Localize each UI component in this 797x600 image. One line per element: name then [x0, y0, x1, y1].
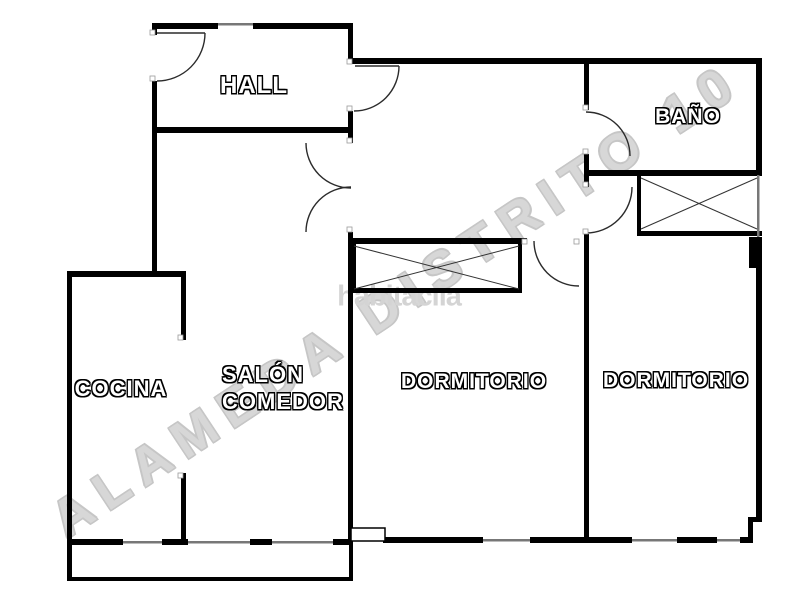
wardrobe2-bottom: [637, 231, 762, 236]
wall-cocina-left: [67, 271, 72, 545]
wall-hall-bottom: [153, 127, 353, 133]
window-right-side: [757, 175, 760, 237]
wall-right-lower: [756, 268, 762, 522]
entry-door-arc: [157, 33, 205, 81]
wall-corridor-bottom: [350, 238, 527, 244]
wall-hall-top-left: [153, 23, 218, 29]
dormitorio1-door-arc: [534, 241, 579, 286]
doors: [157, 33, 632, 286]
label-hall: HALL: [220, 72, 288, 100]
wall-south-1: [67, 539, 123, 545]
wall-bano-bottom: [584, 170, 762, 176]
wall-corridor-top: [348, 58, 762, 64]
wardrobe1-right: [518, 244, 522, 293]
label-salon-line2: COMEDOR: [222, 388, 344, 415]
wall-bano-left: [584, 58, 589, 110]
window-dorm2-south-2: [717, 539, 740, 542]
wall-dorm-south-2: [530, 537, 632, 543]
wall-right-upper: [756, 58, 762, 175]
wall-hall-top-right: [253, 23, 353, 29]
label-dormitorio-2: DORMITORIO: [603, 369, 749, 393]
floor-plan-page: ALAMEDA DISTRITO 10 habitaclia: [0, 0, 797, 600]
double-door-top-arc: [306, 143, 351, 188]
window-salon-south-1: [188, 541, 250, 544]
window-cocina-south: [123, 541, 162, 544]
wall-south-3: [250, 539, 272, 545]
label-bano: BAÑO: [655, 105, 721, 129]
label-salon-comedor: SALÓN COMEDOR: [222, 361, 344, 415]
label-cocina: COCINA: [75, 376, 168, 402]
hall-corridor-door-arc: [354, 66, 399, 111]
wall-dorm-south-1: [383, 537, 483, 543]
windows: [123, 23, 760, 544]
wall-step-horizontal: [748, 517, 762, 522]
window-hall-top: [218, 23, 253, 26]
wall-dorm-south-3: [677, 537, 717, 543]
balcony-step-box: [351, 528, 385, 541]
terrace-right: [349, 543, 353, 581]
window-dorm1-south: [483, 539, 530, 542]
wardrobe1-left: [352, 244, 356, 293]
floor-plan-drawing: [0, 0, 797, 600]
wall-separator-upper: [181, 277, 186, 340]
wardrobe1-bottom: [352, 288, 522, 293]
wall-left-main: [152, 81, 157, 273]
door-jambs: [150, 30, 588, 478]
wall-dorm-separator: [584, 234, 589, 543]
pillar-column: [749, 237, 762, 268]
dormitorio2-door-arc: [586, 187, 632, 233]
wall-step-vertical: [748, 522, 753, 539]
wall-cocina-top: [67, 271, 186, 277]
label-dormitorio-1: DORMITORIO: [401, 370, 547, 394]
label-salon-line1: SALÓN: [222, 361, 344, 388]
wardrobe2-left: [637, 176, 641, 236]
wall-east-upper: [348, 23, 353, 64]
bano-door-arc: [586, 112, 630, 156]
terrace-bottom: [67, 577, 353, 581]
wall-separator-lower: [181, 473, 186, 539]
window-dorm2-south-1: [632, 539, 677, 542]
double-door-bottom-arc: [306, 187, 351, 232]
wall-south-2: [162, 539, 188, 545]
window-salon-south-2: [272, 541, 333, 544]
terrace-left: [67, 545, 72, 581]
